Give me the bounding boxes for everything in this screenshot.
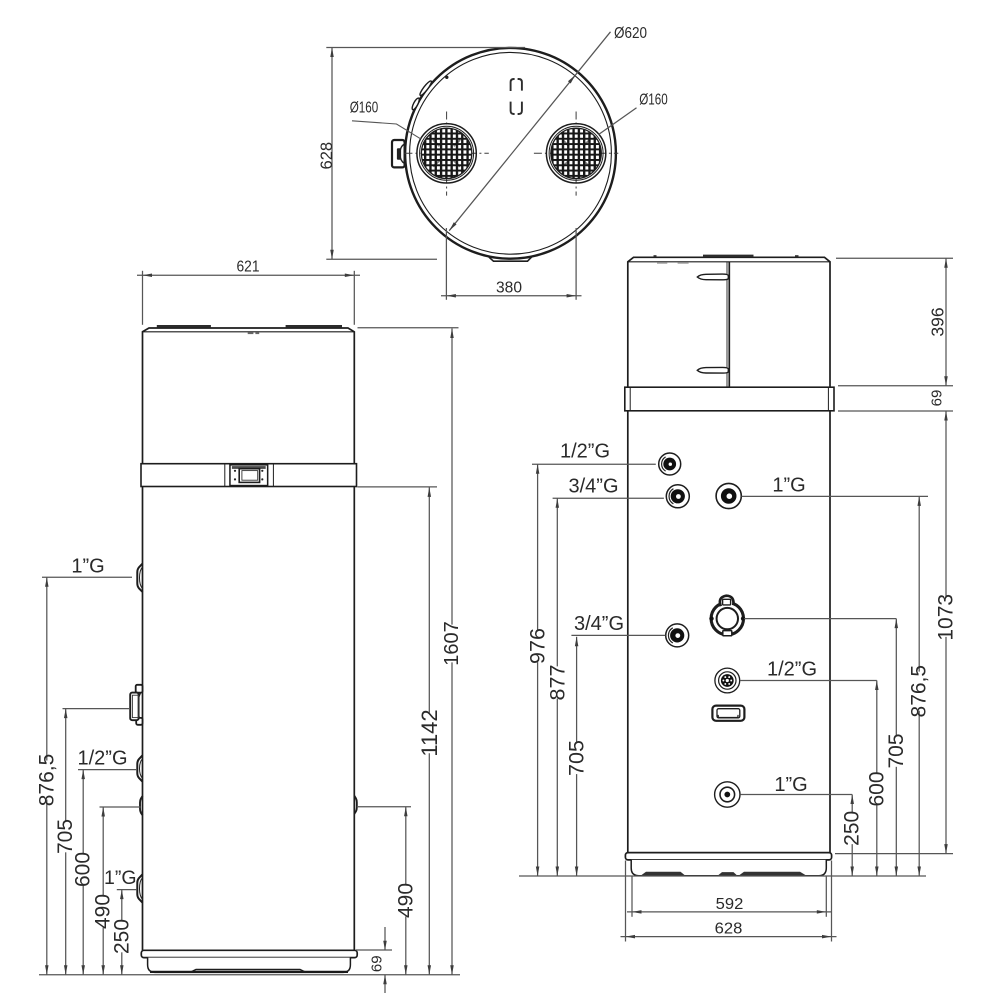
svg-text:Ø160: Ø160 bbox=[350, 100, 379, 117]
svg-text:1/2”G: 1/2”G bbox=[560, 441, 610, 463]
svg-text:600: 600 bbox=[72, 852, 95, 887]
svg-text:490: 490 bbox=[394, 883, 417, 918]
svg-text:1”G: 1”G bbox=[71, 555, 104, 577]
svg-text:1073: 1073 bbox=[935, 594, 958, 641]
svg-text:1142: 1142 bbox=[417, 709, 442, 756]
svg-text:600: 600 bbox=[865, 771, 888, 806]
svg-text:250: 250 bbox=[841, 811, 864, 846]
svg-text:628: 628 bbox=[318, 142, 336, 170]
svg-text:1/2”G: 1/2”G bbox=[77, 747, 127, 769]
svg-text:Ø160: Ø160 bbox=[639, 91, 668, 108]
svg-text:69: 69 bbox=[929, 390, 946, 407]
svg-text:3/4”G: 3/4”G bbox=[568, 476, 618, 498]
svg-text:250: 250 bbox=[110, 919, 133, 954]
svg-text:3/4”G: 3/4”G bbox=[574, 613, 624, 635]
svg-text:380: 380 bbox=[496, 280, 522, 297]
svg-text:1/2”G: 1/2”G bbox=[767, 658, 817, 680]
svg-text:Ø620: Ø620 bbox=[614, 25, 647, 42]
svg-text:976: 976 bbox=[526, 628, 550, 664]
svg-text:876,5: 876,5 bbox=[908, 665, 931, 718]
svg-text:705: 705 bbox=[885, 733, 908, 768]
svg-text:876,5: 876,5 bbox=[35, 754, 58, 807]
svg-text:396: 396 bbox=[928, 307, 948, 336]
svg-text:705: 705 bbox=[54, 819, 77, 854]
svg-text:1”G: 1”G bbox=[104, 867, 137, 889]
svg-text:705: 705 bbox=[565, 740, 589, 776]
svg-text:621: 621 bbox=[237, 259, 260, 276]
svg-text:69: 69 bbox=[369, 955, 386, 972]
svg-text:592: 592 bbox=[716, 896, 744, 913]
svg-text:1607: 1607 bbox=[441, 621, 463, 666]
svg-text:1”G: 1”G bbox=[772, 475, 805, 497]
svg-text:1”G: 1”G bbox=[774, 774, 807, 796]
svg-text:628: 628 bbox=[715, 921, 743, 938]
svg-text:877: 877 bbox=[545, 665, 569, 701]
